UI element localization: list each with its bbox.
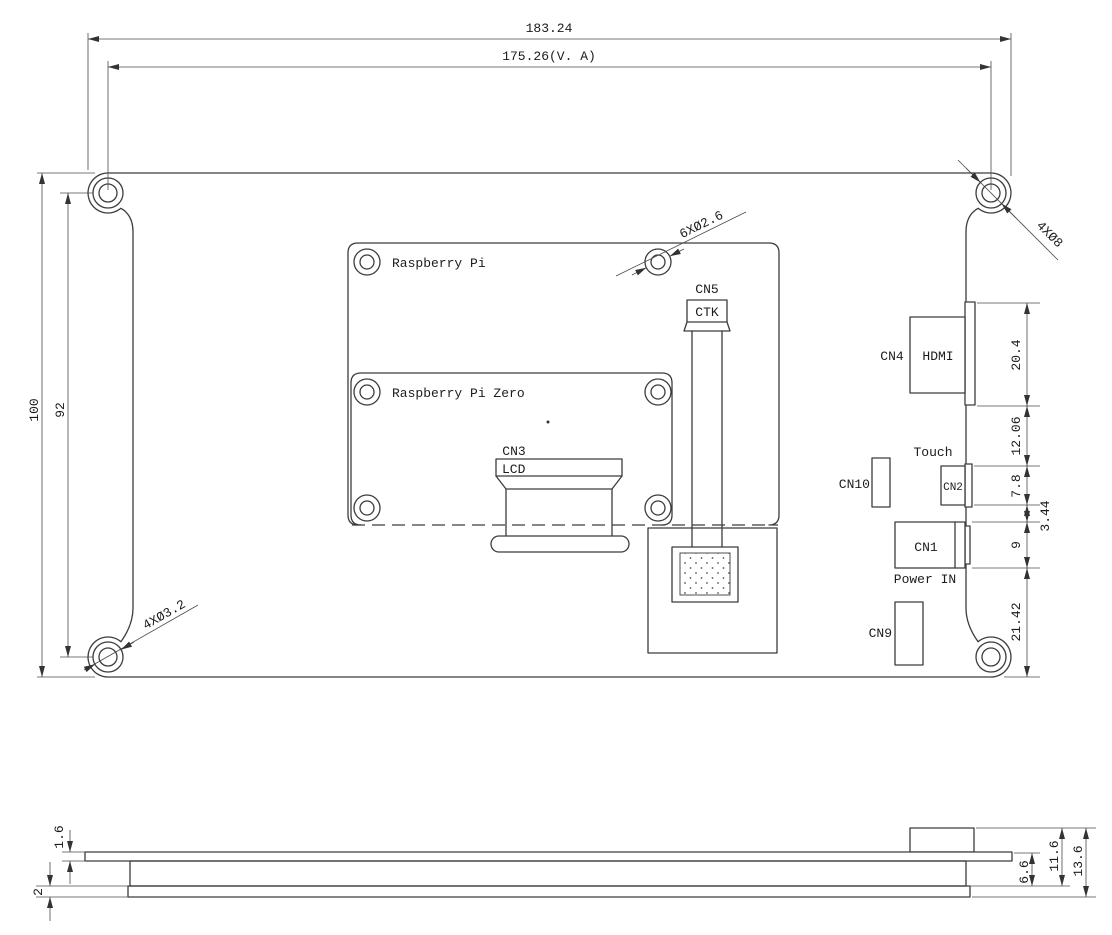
cn1-label: CN1	[914, 540, 938, 555]
side-pcb	[85, 852, 1012, 861]
hdmi-label: HDMI	[922, 349, 953, 364]
touch-label: Touch	[913, 445, 952, 460]
cn3-label: CN3	[502, 444, 525, 459]
dim-hole-span: 92	[53, 402, 68, 418]
callout-corner-pads: 4XØ8	[1033, 218, 1066, 251]
dim-with-connector: 11.6	[1047, 840, 1062, 871]
drawing-canvas: Raspberry Pi Raspberry Pi Zero CN5 CTK C…	[0, 0, 1112, 935]
center-dot	[547, 421, 550, 424]
board-outline	[88, 173, 1011, 677]
dim-overall-width: 183.24	[526, 21, 573, 36]
dim-overall-height: 100	[27, 398, 42, 421]
technical-drawing: Raspberry Pi Raspberry Pi Zero CN5 CTK C…	[0, 0, 1112, 935]
cn2-label: CN2	[943, 482, 963, 494]
callout-small-holes: 6XØ2.6	[677, 208, 726, 242]
screw-holes	[354, 249, 671, 521]
cn10-connector	[872, 458, 890, 507]
dim-hdmi-height: 20.4	[1009, 339, 1024, 370]
ctk-label: CTK	[695, 305, 719, 320]
dim-cn2-height: 7.8	[1009, 474, 1024, 497]
callout-leaders	[84, 160, 1058, 670]
corner-mounting-holes	[93, 178, 1006, 672]
dim-va-width: 175.26(V. A)	[502, 49, 596, 64]
dim-total: 13.6	[1071, 845, 1086, 876]
dim-bottom-layer: 2	[31, 888, 46, 896]
cn9-label: CN9	[869, 626, 892, 641]
side-bottom-layer	[128, 886, 970, 897]
rpi-label: Raspberry Pi	[392, 256, 486, 271]
dimension-lines-left	[37, 173, 95, 677]
dim-cn1-to-edge: 21.42	[1009, 602, 1024, 641]
side-view	[85, 828, 1012, 897]
dim-cn1-height: 9	[1009, 541, 1024, 549]
dimension-lines-right	[972, 303, 1040, 677]
touch-bond-area	[648, 528, 777, 653]
dim-pcb-thickness: 1.6	[52, 825, 67, 848]
dim-cn2-to-cn1: 3.44	[1038, 500, 1053, 531]
power-in-label: Power IN	[894, 572, 956, 587]
lcd-label: LCD	[502, 462, 526, 477]
cn4-label: CN4	[880, 349, 904, 364]
cn10-label: CN10	[839, 477, 870, 492]
dim-hdmi-to-cn2: 12.06	[1009, 416, 1024, 455]
cn5-ctk-connector	[684, 300, 730, 547]
cn5-label: CN5	[695, 282, 718, 297]
cn9-connector	[895, 602, 923, 665]
rpi-zero-label: Raspberry Pi Zero	[392, 386, 525, 401]
side-lcd-module	[130, 861, 966, 886]
dim-stack: 6.6	[1017, 860, 1032, 883]
side-hdmi-block	[910, 828, 974, 852]
